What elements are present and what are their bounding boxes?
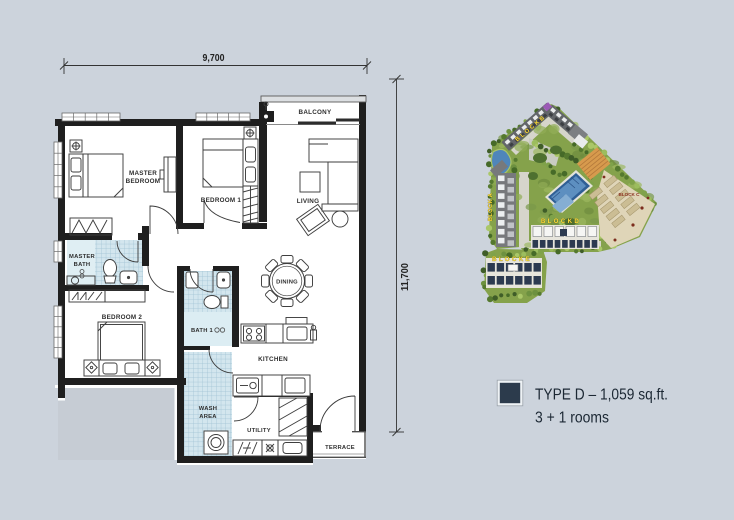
svg-text:BLOCK A: BLOCK A <box>488 192 494 221</box>
svg-text:9,700: 9,700 <box>203 52 225 64</box>
svg-text:BLOCK C: BLOCK C <box>619 192 641 197</box>
svg-text:MASTER: MASTER <box>129 170 157 177</box>
svg-text:AREA: AREA <box>199 414 217 420</box>
svg-text:B L O C K E: B L O C K E <box>492 256 530 263</box>
svg-text:BEDROOM 1: BEDROOM 1 <box>201 197 242 204</box>
svg-text:3 + 1 rooms: 3 + 1 rooms <box>535 410 609 427</box>
svg-text:TERRACE: TERRACE <box>325 445 355 451</box>
svg-text:BATH: BATH <box>74 262 91 268</box>
svg-text:BEDROOM: BEDROOM <box>126 178 161 185</box>
svg-text:TYPE D – 1,059 sq.ft.: TYPE D – 1,059 sq.ft. <box>535 387 668 404</box>
svg-text:BALCONY: BALCONY <box>299 109 332 116</box>
svg-text:BATH 1: BATH 1 <box>191 328 214 334</box>
svg-text:WASH: WASH <box>199 406 217 412</box>
svg-text:LIVING: LIVING <box>297 198 320 205</box>
svg-text:MASTER: MASTER <box>69 254 96 260</box>
svg-text:KITCHEN: KITCHEN <box>258 356 288 363</box>
svg-text:11,700: 11,700 <box>399 263 411 291</box>
svg-text:B L O C K D: B L O C K D <box>541 218 579 225</box>
svg-text:DINING: DINING <box>276 280 298 286</box>
svg-text:BEDROOM 2: BEDROOM 2 <box>102 314 143 321</box>
svg-text:UTILITY: UTILITY <box>247 428 271 434</box>
